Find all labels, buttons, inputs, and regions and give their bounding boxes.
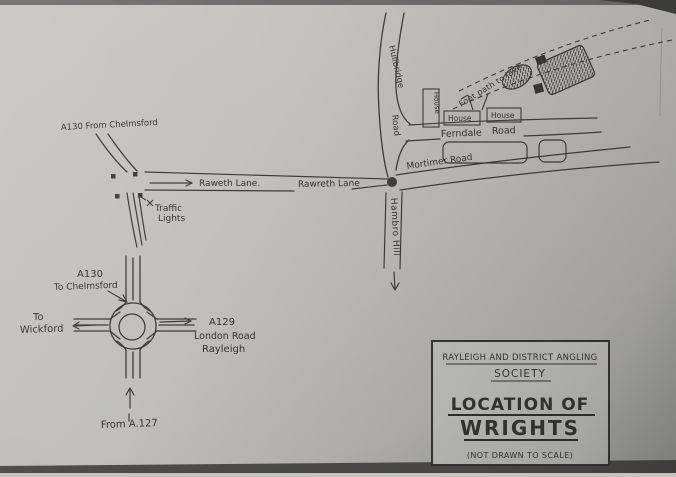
title-line1: LOCATION OF (451, 395, 590, 415)
a129-label: A129 (209, 317, 235, 328)
map-drawing: A130 From Chelmsford Raweth Lane. Rawret… (0, 0, 676, 473)
society-name-line1: RAYLEIGH AND DISTRICT ANGLING (442, 353, 597, 363)
house-label-1: House (432, 92, 441, 114)
ferndale-road-label-1: Ferndale (441, 128, 482, 140)
photographed-map-page: A130 From Chelmsford Raweth Lane. Rawret… (0, 0, 676, 473)
from-a127-label: From A.127 (101, 418, 158, 431)
house-label-3: House (491, 111, 515, 120)
title-box: RAYLEIGH AND DISTRICT ANGLING SOCIETY LO… (432, 341, 609, 465)
rawreth-lane-mid-label: Rawreth Lane (298, 179, 360, 190)
scale-note: (NOT DRAWN TO SCALE) (467, 451, 573, 460)
wickford-label: Wickford (20, 323, 64, 336)
title-line2: WRIGHTS (460, 416, 580, 440)
top-edge-shadow (0, 0, 676, 5)
rayleigh-label: Rayleigh (202, 344, 245, 355)
traffic-lights-label-2: Lights (158, 214, 185, 224)
junction-dot (387, 177, 397, 187)
rawreth-lane-west-label: Raweth Lane. (199, 179, 260, 189)
a130-label: A130 (77, 269, 103, 280)
to-label: To (32, 312, 44, 323)
ferndale-road-label-2: Road (492, 125, 516, 137)
society-name-line2: SOCIETY (494, 368, 546, 380)
traffic-lights-label-1: Traffic (154, 204, 182, 214)
london-road-label: London Road (194, 331, 256, 342)
house-label-2: House (448, 114, 472, 123)
